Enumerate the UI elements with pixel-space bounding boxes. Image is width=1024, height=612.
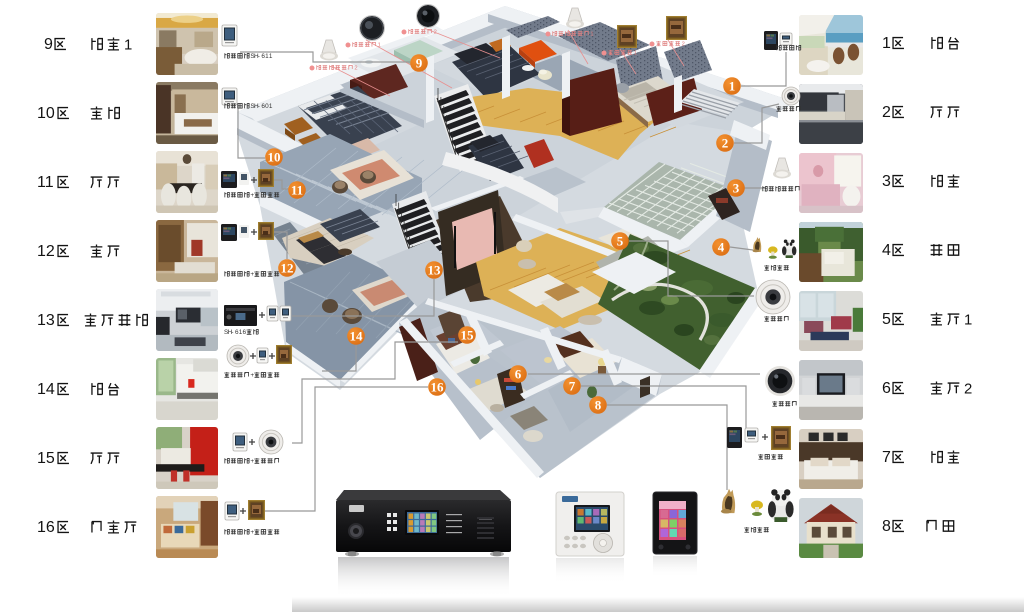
svg-text:-: - <box>258 53 260 60</box>
svg-text:2: 2 <box>964 381 972 397</box>
svg-text:13: 13 <box>428 263 442 278</box>
svg-text:1: 1 <box>634 51 637 57</box>
svg-text:2: 2 <box>354 66 357 72</box>
svg-text:4: 4 <box>882 242 891 259</box>
svg-text:16: 16 <box>37 519 55 536</box>
svg-text:+: + <box>250 192 254 199</box>
svg-text:6: 6 <box>243 329 247 336</box>
svg-text:7: 7 <box>569 379 576 394</box>
svg-text:8: 8 <box>882 518 891 535</box>
svg-text:16: 16 <box>431 380 445 395</box>
svg-text:3: 3 <box>882 173 891 190</box>
svg-text:6: 6 <box>882 380 891 397</box>
svg-text:1: 1 <box>269 53 273 60</box>
svg-text:+: + <box>250 271 254 278</box>
svg-text:+: + <box>250 372 254 379</box>
svg-text:15: 15 <box>37 450 55 467</box>
svg-text:2: 2 <box>682 42 685 48</box>
svg-text:11: 11 <box>291 183 303 198</box>
svg-text:-: - <box>231 329 233 336</box>
svg-text:6: 6 <box>515 367 522 382</box>
svg-text:8: 8 <box>595 398 602 413</box>
svg-text:11: 11 <box>37 174 54 191</box>
svg-text:+: + <box>250 458 254 465</box>
svg-text:7: 7 <box>882 449 891 466</box>
svg-text:15: 15 <box>461 328 475 343</box>
svg-text:10: 10 <box>37 105 55 122</box>
svg-text:9: 9 <box>416 56 423 71</box>
svg-text:10: 10 <box>268 150 281 165</box>
svg-text:1: 1 <box>964 312 972 328</box>
svg-text:12: 12 <box>37 243 55 260</box>
svg-text:14: 14 <box>37 381 55 398</box>
svg-text:13: 13 <box>37 312 55 329</box>
svg-text:9: 9 <box>44 36 53 53</box>
svg-text:1: 1 <box>269 103 273 110</box>
svg-text:4: 4 <box>718 240 725 255</box>
svg-text:1: 1 <box>882 35 891 52</box>
svg-text:1: 1 <box>590 32 593 38</box>
svg-text:12: 12 <box>281 261 294 276</box>
svg-text:14: 14 <box>350 329 364 344</box>
svg-text:3: 3 <box>733 181 740 196</box>
svg-text:1: 1 <box>124 37 132 53</box>
svg-text:5: 5 <box>617 234 624 249</box>
svg-text:+: + <box>250 529 254 536</box>
svg-text:2: 2 <box>722 136 729 151</box>
svg-text:1: 1 <box>729 79 736 94</box>
svg-text:-: - <box>258 103 260 110</box>
svg-text:5: 5 <box>882 311 891 328</box>
svg-text:2: 2 <box>882 104 891 121</box>
